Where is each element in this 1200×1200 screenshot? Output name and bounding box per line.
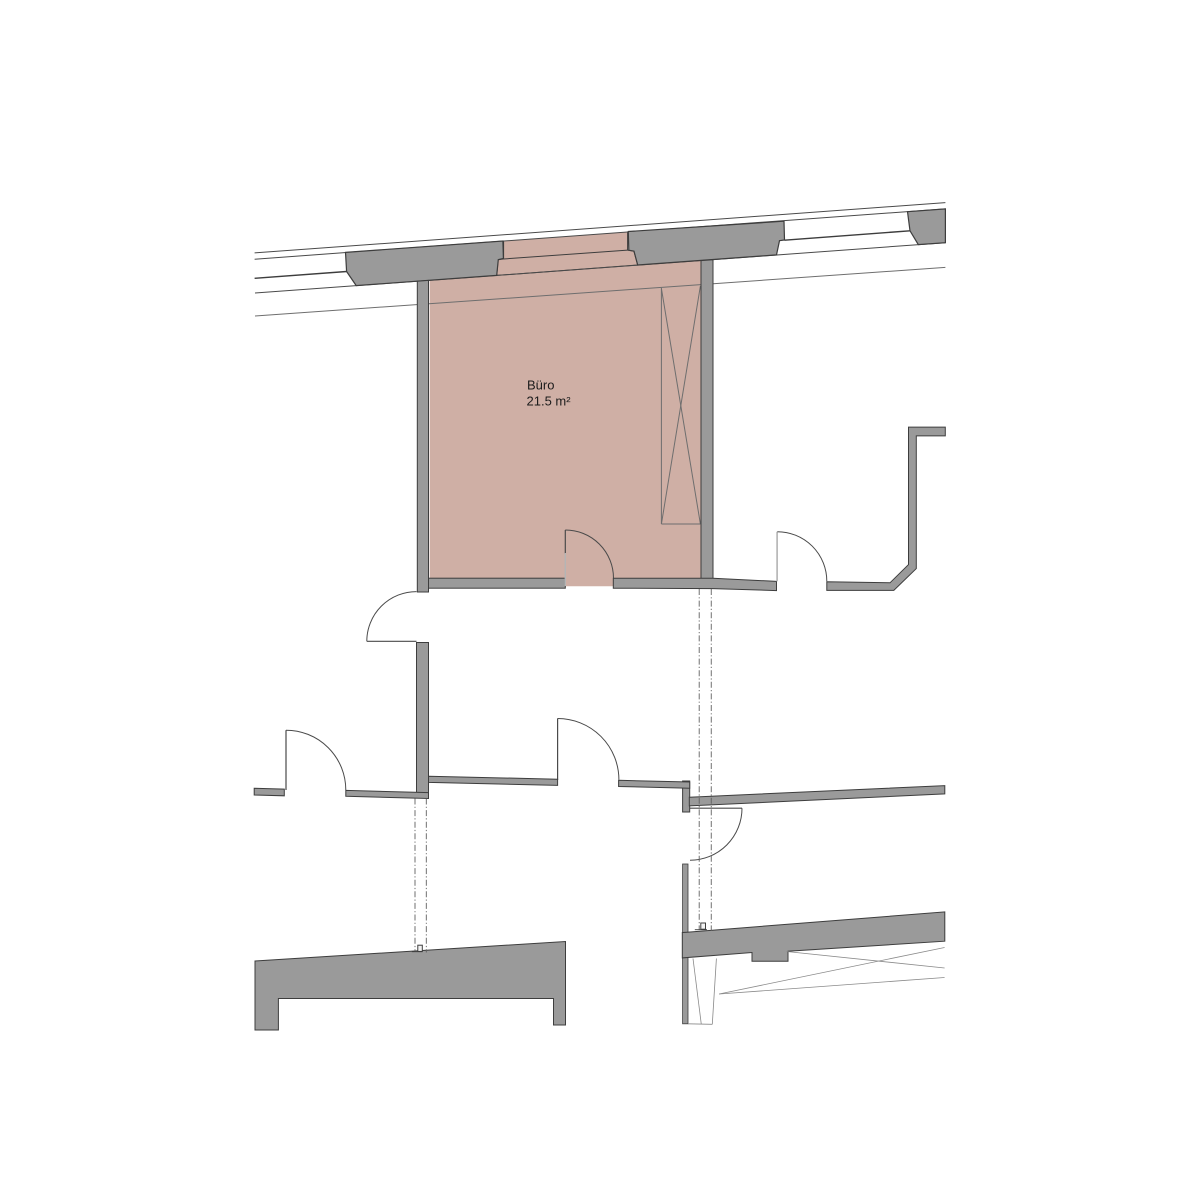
svg-text:Büro: Büro — [527, 378, 554, 393]
svg-text:21.5 m²: 21.5 m² — [527, 394, 572, 409]
